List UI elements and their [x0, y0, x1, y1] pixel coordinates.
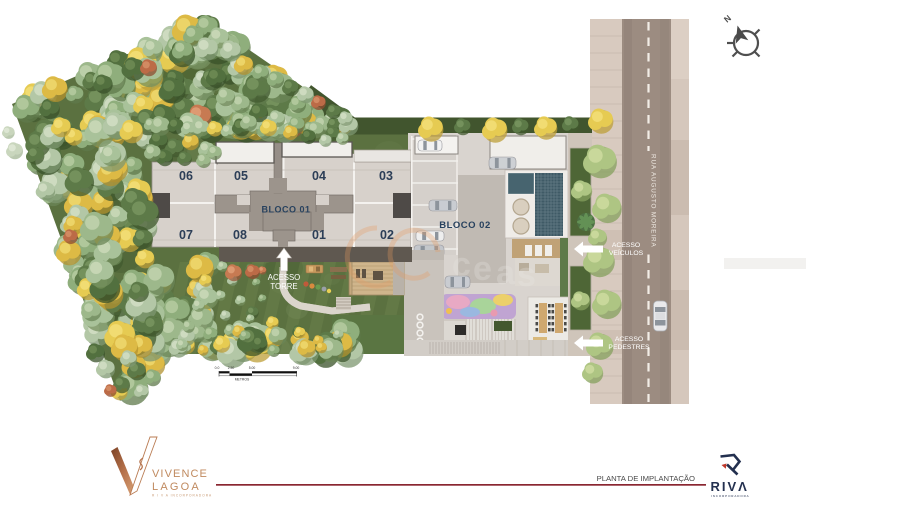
- svg-text:04: 04: [312, 169, 326, 183]
- svg-text:RUA AUGUSTO MOREIRA: RUA AUGUSTO MOREIRA: [650, 154, 657, 248]
- svg-text:01: 01: [312, 228, 326, 242]
- svg-text:RIVΛ: RIVΛ: [711, 479, 749, 494]
- svg-text:03: 03: [379, 169, 393, 183]
- svg-text:s: s: [517, 256, 536, 294]
- svg-text:PLANTA DE IMPLANTAÇÃO: PLANTA DE IMPLANTAÇÃO: [597, 474, 695, 483]
- svg-text:ACESSO: ACESSO: [268, 273, 301, 282]
- svg-text:VIVENCE: VIVENCE: [152, 468, 208, 480]
- svg-text:INCORPORADORA: INCORPORADORA: [711, 494, 750, 498]
- svg-text:07: 07: [179, 228, 193, 242]
- svg-text:PEDESTRES: PEDESTRES: [608, 344, 650, 351]
- svg-text:2.50: 2.50: [228, 366, 235, 370]
- svg-text:ACESSO: ACESSO: [612, 242, 640, 249]
- svg-text:R I V A INCORPORADORA: R I V A INCORPORADORA: [152, 494, 212, 498]
- svg-text:LAGOA: LAGOA: [152, 481, 201, 493]
- svg-text:0.0: 0.0: [215, 366, 220, 370]
- svg-text:e: e: [473, 250, 492, 288]
- svg-text:BLOCO 01: BLOCO 01: [261, 205, 310, 215]
- svg-text:5.00: 5.00: [249, 366, 256, 370]
- svg-text:VEÍCULOS: VEÍCULOS: [609, 248, 644, 257]
- svg-text:9.00: 9.00: [293, 366, 300, 370]
- svg-text:BLOCO 02: BLOCO 02: [439, 220, 491, 231]
- svg-text:08: 08: [233, 228, 247, 242]
- svg-text:06: 06: [179, 169, 193, 183]
- svg-text:ACESSO: ACESSO: [615, 336, 643, 343]
- svg-text:05: 05: [234, 169, 248, 183]
- svg-text:a: a: [496, 254, 516, 292]
- svg-text:c: c: [452, 246, 471, 284]
- svg-text:TORRE: TORRE: [270, 282, 297, 291]
- svg-text:METROS: METROS: [235, 378, 250, 382]
